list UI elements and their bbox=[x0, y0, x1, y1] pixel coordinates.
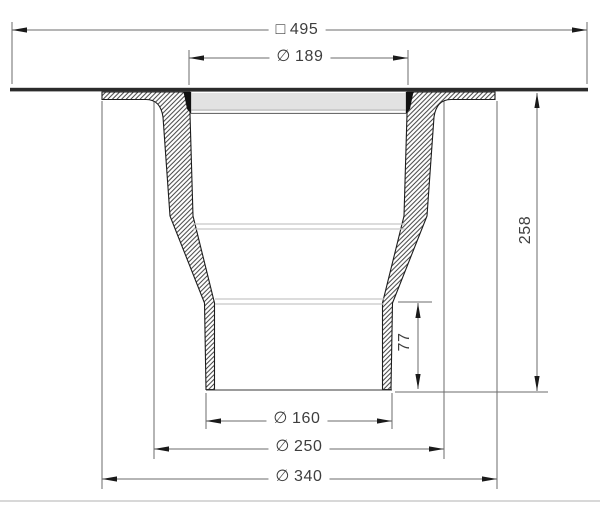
dim-label-outlet-diameter: ∅ 160 bbox=[266, 410, 327, 428]
technical-drawing-page: □ 495 ∅ 189 258 77 ∅ 160 ∅ 250 ∅ 340 bbox=[0, 0, 600, 508]
dim-value: 160 bbox=[292, 411, 321, 427]
dim-value: 495 bbox=[290, 22, 319, 38]
dim-label-inlet-diameter: ∅ 189 bbox=[269, 48, 330, 66]
body-section-left-wall bbox=[102, 92, 215, 390]
dim-label-flange-diameter: ∅ 340 bbox=[268, 468, 329, 486]
dim-value: 250 bbox=[294, 439, 323, 455]
socket-joint-upper bbox=[193, 224, 405, 229]
inlet-liner-ribs bbox=[191, 92, 406, 114]
floor-plate bbox=[10, 88, 588, 92]
dim-value: 189 bbox=[295, 49, 324, 65]
dim-value: 77 bbox=[397, 333, 413, 352]
socket-joint-lower bbox=[215, 299, 384, 304]
dim-label-body-diameter: ∅ 250 bbox=[268, 438, 329, 456]
diameter-symbol: ∅ bbox=[273, 411, 288, 427]
dim-value: 258 bbox=[518, 216, 534, 245]
diameter-symbol: ∅ bbox=[275, 469, 290, 485]
dim-value: 340 bbox=[294, 469, 323, 485]
dim-label-outlet-length: 77 bbox=[396, 331, 414, 354]
diameter-symbol: ∅ bbox=[275, 439, 290, 455]
dim-label-overall-width: □ 495 bbox=[269, 21, 326, 39]
square-symbol: □ bbox=[276, 22, 286, 38]
diameter-symbol: ∅ bbox=[276, 49, 291, 65]
dim-label-overall-height: 258 bbox=[517, 214, 535, 247]
drawing-canvas bbox=[0, 0, 600, 508]
